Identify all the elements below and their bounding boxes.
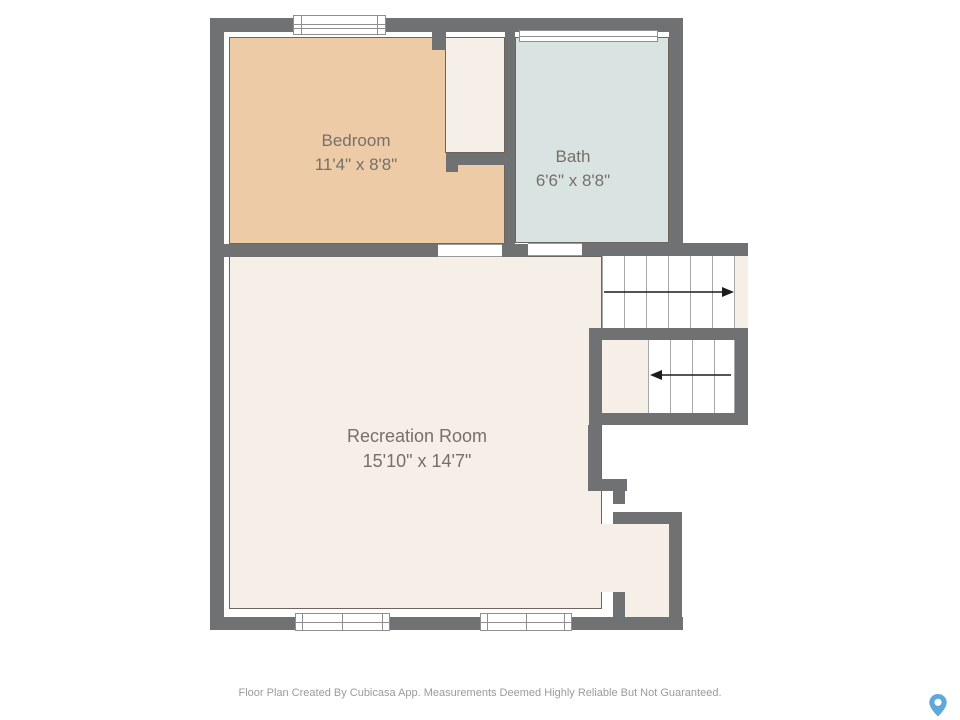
wall-left — [210, 18, 224, 630]
recreation-room-label: Recreation Room 15'10" x 14'7" — [347, 424, 487, 474]
recreation-room-dimensions: 15'10" x 14'7" — [347, 449, 487, 474]
stair-top-opening — [735, 256, 748, 328]
bedroom-label: Bedroom 11'4" x 8'8" — [315, 129, 398, 177]
bath-label: Bath 6'6" x 8'8" — [536, 145, 610, 193]
wall-landing-left — [589, 328, 602, 425]
map-pin-icon[interactable] — [928, 693, 948, 718]
wall-bottom — [210, 617, 683, 630]
alcove-floor — [624, 524, 670, 617]
wall-right-upper — [669, 18, 683, 245]
wall-closet-jamb — [446, 153, 458, 172]
wall-jog-stub — [613, 479, 625, 504]
wall-bath-bottom-stairs-top — [582, 243, 748, 256]
stair-up-arrow-icon — [603, 285, 735, 299]
wall-between-doors — [502, 244, 528, 257]
window-symbol-bottom-left — [295, 613, 390, 631]
bath-name: Bath — [536, 145, 610, 169]
disclaimer-text: Floor Plan Created By Cubicasa App. Meas… — [0, 687, 960, 699]
bedroom-dimensions: 11'4" x 8'8" — [315, 153, 398, 177]
closet-floor — [445, 37, 505, 153]
bath-door-opening — [528, 243, 582, 256]
bath-dimensions: 6'6" x 8'8" — [536, 169, 610, 193]
bedroom-door-opening — [438, 244, 502, 257]
bedroom-name: Bedroom — [315, 129, 398, 153]
wall-closet-stub — [432, 32, 446, 50]
window-symbol-top — [293, 15, 386, 35]
alcove-opening — [601, 524, 626, 592]
wall-alcove-right — [669, 512, 682, 630]
window-symbol-bath — [519, 30, 658, 42]
window-symbol-bottom-right — [480, 613, 572, 631]
stair-landing-floor — [598, 340, 648, 413]
bath-floor — [515, 37, 669, 243]
floor-plan-canvas: Bedroom 11'4" x 8'8" Bath 6'6" x 8'8" Re… — [0, 0, 960, 720]
recreation-room-name: Recreation Room — [347, 424, 487, 449]
wall-rec-right-below-stairs — [588, 425, 601, 479]
wall-bedroom-bottom — [210, 244, 438, 257]
wall-stairs-middle — [589, 328, 748, 340]
wall-lower-flight-right — [735, 338, 748, 425]
wall-stairs-bottom — [589, 413, 748, 425]
wall-alcove-left-stub — [613, 592, 625, 617]
wall-bedroom-bath-divider — [505, 32, 515, 244]
stair-down-arrow-icon — [649, 368, 733, 382]
